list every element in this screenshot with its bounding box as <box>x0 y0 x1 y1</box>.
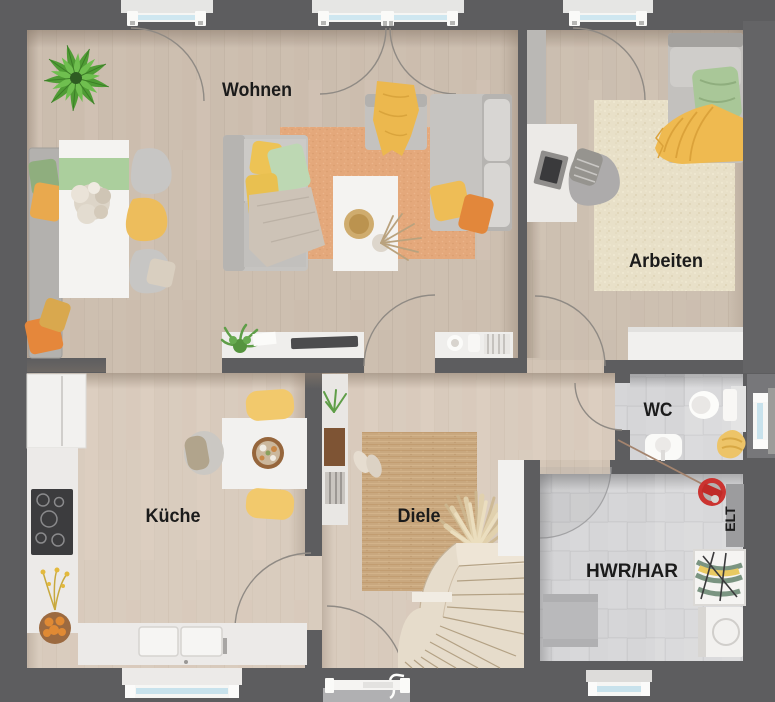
svg-text:HWR/HAR: HWR/HAR <box>586 560 678 582</box>
svg-text:Wohnen: Wohnen <box>222 79 292 101</box>
svg-text:Küche: Küche <box>146 505 201 527</box>
svg-text:WC: WC <box>644 399 673 421</box>
svg-text:Diele: Diele <box>398 505 441 527</box>
svg-text:Arbeiten: Arbeiten <box>629 250 703 272</box>
svg-text:ELT: ELT <box>722 506 738 532</box>
